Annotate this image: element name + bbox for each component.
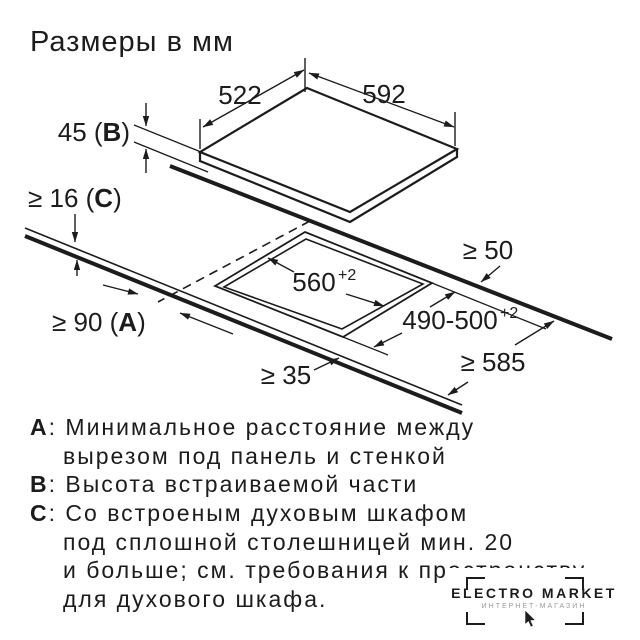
cursor-arrow-icon (524, 610, 537, 628)
dim-back-clearance: ≥ 50 (463, 235, 513, 282)
dim-label-50: ≥ 50 (463, 235, 513, 265)
dim-label-592: 592 (362, 79, 405, 109)
watermark-brand: ELECTRO MARKET (448, 585, 620, 601)
frame-corner-icon (565, 612, 584, 625)
dim-label-90-a: ≥ 90 (A) (52, 307, 146, 337)
watermark: ELECTRO MARKET ИНТЕРНЕТ-МАГАЗИН (448, 568, 620, 636)
legend-line-a2: вырезом под панель и стенкой (30, 442, 640, 471)
dim-panel-height: 45 (B) (58, 103, 208, 173)
legend-line-b1: B: Высота встраиваемой части (30, 470, 630, 499)
dim-label-490-500: 490-500 (402, 305, 497, 335)
dim-front-clearance: ≥ 35 (261, 358, 339, 390)
dim-label-45-b: 45 (B) (58, 117, 130, 147)
legend-line-a1: A: Минимальное расстояние между (30, 413, 630, 442)
dim-label-35: ≥ 35 (261, 360, 311, 390)
frame-corner-icon (466, 612, 485, 625)
legend-line-c1: C: Со встроеным духовым шкафом (30, 499, 630, 528)
dim-label-560: 560 (292, 267, 335, 297)
dim-label-16-c: ≥ 16 (C) (28, 183, 122, 213)
page: Размеры в мм (0, 0, 640, 640)
dim-label-560-tolerance: +2 (338, 267, 356, 284)
dim-label-585: ≥ 585 (461, 347, 526, 377)
dim-label-490-500-tolerance: +2 (500, 305, 518, 322)
legend-line-c2: под сплошной столешницей мин. 20 (30, 528, 640, 557)
watermark-tagline: ИНТЕРНЕТ-МАГАЗИН (448, 603, 620, 610)
dim-label-522: 522 (218, 80, 261, 110)
